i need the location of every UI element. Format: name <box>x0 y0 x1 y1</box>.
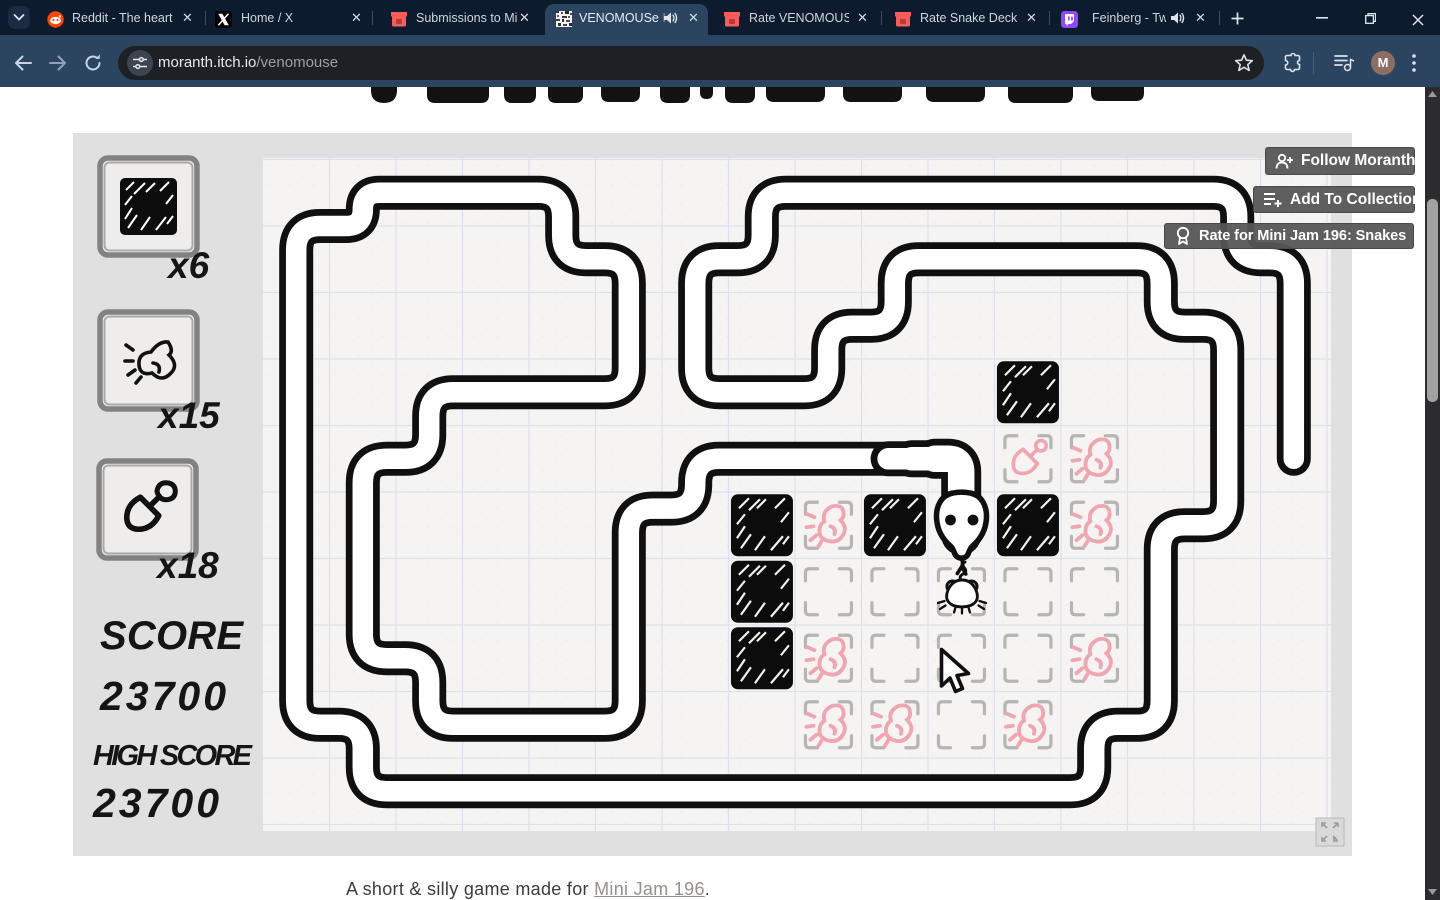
svg-text:x15: x15 <box>156 395 221 436</box>
svg-text:23700: 23700 <box>99 673 226 719</box>
svg-text:x18: x18 <box>155 545 219 586</box>
svg-text:23700: 23700 <box>92 780 219 826</box>
svg-text:x6: x6 <box>166 245 210 286</box>
svg-text:HIGH SCORE: HIGH SCORE <box>93 740 254 772</box>
svg-text:SCORE: SCORE <box>100 614 244 658</box>
